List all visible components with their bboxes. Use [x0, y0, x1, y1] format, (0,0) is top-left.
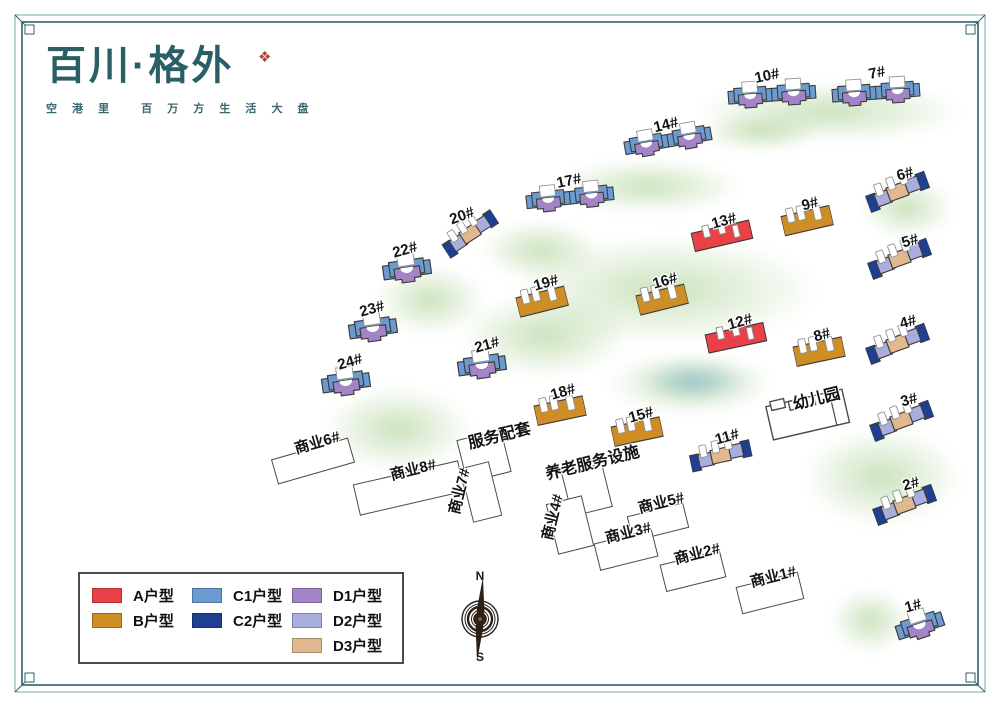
building-label-13: 13#	[710, 209, 739, 232]
building-label-fwpt: 服务配套	[465, 415, 533, 454]
logo-seal-icon: ❖	[258, 50, 271, 65]
compass-icon: N S	[448, 568, 512, 664]
building-label-sy7: 商业7#	[443, 466, 475, 516]
unit-type-legend: A户型B户型C1户型C2户型D1户型D2户型D3户型	[78, 572, 404, 664]
building-label-2: 2#	[901, 474, 922, 495]
building-label-sy5: 商业5#	[636, 486, 686, 518]
building-label-12: 12#	[726, 310, 755, 333]
legend-column: C1户型C2户型	[192, 587, 292, 656]
building-label-ylfw: 养老服务设施	[543, 438, 642, 485]
building-label-sy6: 商业6#	[292, 425, 343, 458]
legend-item-d2: D2户型	[292, 612, 392, 628]
legend-label: C1户型	[233, 585, 282, 606]
legend-item-b: B户型	[92, 612, 192, 628]
building-label-3: 3#	[899, 390, 920, 411]
building-label-16: 16#	[651, 269, 680, 292]
legend-column: A户型B户型	[92, 587, 192, 656]
project-tagline: 空 港 里 百 万 方 生 活 大 盘	[46, 100, 315, 116]
building-label-sy1: 商业1#	[748, 560, 798, 592]
legend-item-c2: C2户型	[192, 612, 292, 628]
building-label-6: 6#	[895, 164, 916, 185]
building-label-9: 9#	[800, 194, 821, 215]
building-label-4: 4#	[898, 312, 919, 333]
building-label-sy2: 商业2#	[672, 537, 722, 569]
building-label-23: 23#	[358, 297, 387, 320]
legend-column: D1户型D2户型D3户型	[292, 587, 392, 656]
site-plan-page: 百川·格外 ❖ 空 港 里 百 万 方 生 活 大 盘 10#7#14#17#2…	[0, 0, 1000, 707]
building-label-15: 15#	[627, 403, 656, 426]
legend-swatch-c1	[192, 588, 222, 603]
legend-swatch-d3	[292, 638, 322, 653]
legend-swatch-b	[92, 613, 122, 628]
legend-item-d3: D3户型	[292, 637, 392, 653]
building-label-sy3: 商业3#	[603, 516, 653, 548]
legend-label: D2户型	[333, 610, 382, 631]
legend-label: C2户型	[233, 610, 282, 631]
legend-swatch-d2	[292, 613, 322, 628]
building-label-10: 10#	[753, 65, 781, 87]
building-label-19: 19#	[532, 271, 561, 294]
svg-text:S: S	[476, 650, 484, 664]
building-label-22: 22#	[391, 238, 420, 261]
building-label-24: 24#	[336, 350, 365, 373]
legend-label: D1户型	[333, 585, 382, 606]
building-label-11: 11#	[713, 425, 741, 448]
legend-label: A户型	[133, 585, 174, 606]
building-label-20: 20#	[447, 204, 476, 229]
building-label-17: 17#	[555, 170, 583, 192]
building-label-7: 7#	[867, 63, 887, 83]
legend-item-c1: C1户型	[192, 587, 292, 603]
legend-item-d1: D1户型	[292, 587, 392, 603]
building-label-8: 8#	[812, 325, 833, 346]
project-title: 百川·格外	[46, 44, 315, 88]
building-label-21: 21#	[473, 333, 502, 356]
legend-swatch-c2	[192, 613, 222, 628]
legend-swatch-a	[92, 588, 122, 603]
legend-label: D3户型	[333, 635, 382, 656]
project-logo: 百川·格外 ❖ 空 港 里 百 万 方 生 活 大 盘	[46, 44, 315, 116]
building-label-18: 18#	[549, 380, 578, 403]
building-label-5: 5#	[900, 231, 921, 252]
building-label-14: 14#	[652, 114, 680, 137]
legend-swatch-d1	[292, 588, 322, 603]
legend-item-a: A户型	[92, 587, 192, 603]
legend-label: B户型	[133, 610, 174, 631]
building-label-sy4: 商业4#	[536, 492, 568, 542]
building-label-kg: 幼儿园	[790, 380, 842, 415]
building-label-sy8: 商业8#	[388, 453, 438, 485]
building-label-1: 1#	[903, 596, 924, 617]
